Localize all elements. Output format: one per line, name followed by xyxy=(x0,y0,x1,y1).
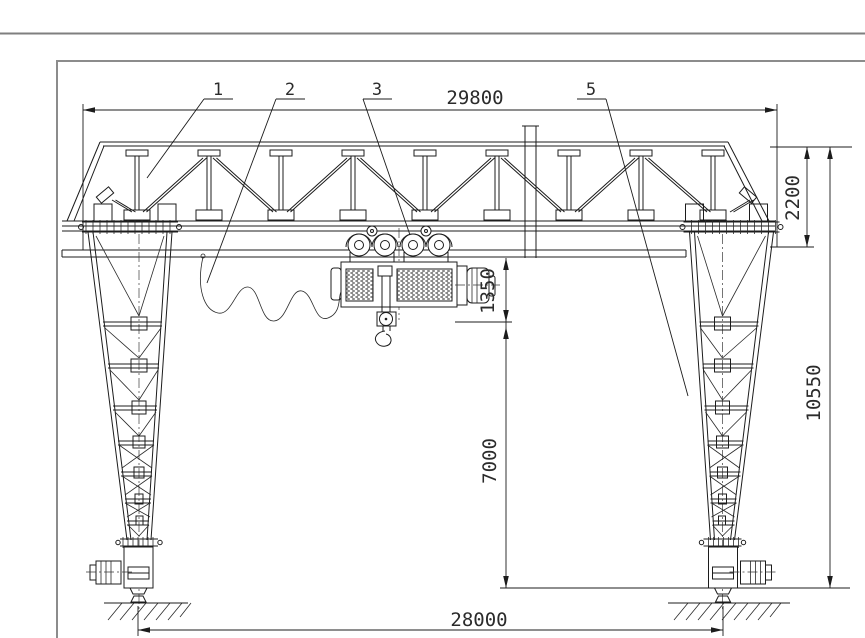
bridge-truss-girder xyxy=(62,142,775,231)
callout-1-text: 1 xyxy=(213,80,223,100)
travel-bogie xyxy=(86,547,153,602)
drawing-sheet: 29800 2200 10550 1350 7000 28000 1 2 xyxy=(0,0,865,638)
dimension-lifting-height: 7000 xyxy=(479,327,509,588)
callout-3-text: 3 xyxy=(372,80,382,100)
hoist-body xyxy=(331,262,500,312)
callout-5-text: 5 xyxy=(586,80,596,100)
dim-girder-depth-text: 2200 xyxy=(782,175,804,221)
truss-end-bracket-left xyxy=(96,187,113,203)
hook-block xyxy=(375,312,396,346)
truss-post-caps xyxy=(126,150,724,156)
callout-2-text: 2 xyxy=(285,80,295,100)
ground-right xyxy=(668,603,790,620)
hoist-monorail-beam xyxy=(62,250,686,257)
truss-end-bracket-right xyxy=(739,187,756,203)
leg-lattice xyxy=(96,236,164,536)
crane-drawing-canvas: 29800 2200 10550 1350 7000 28000 1 2 xyxy=(0,0,865,638)
support-leg-right xyxy=(680,204,783,612)
ground-left xyxy=(104,603,191,620)
dim-hook-headroom-text: 1350 xyxy=(477,268,499,314)
dim-overall-height-text: 10550 xyxy=(803,364,825,421)
rail-section xyxy=(131,596,146,602)
dimension-girder-depth: 2200 xyxy=(770,147,852,247)
dim-span-text: 28000 xyxy=(450,609,507,631)
dimension-span: 28000 xyxy=(138,606,723,636)
dimension-hook-headroom: 1350 xyxy=(455,258,512,588)
dim-overall-length-text: 29800 xyxy=(446,87,503,109)
hook-icon xyxy=(375,331,391,346)
truss-diagonals xyxy=(112,158,754,212)
dim-lifting-height-text: 7000 xyxy=(479,438,501,484)
festoon-cable xyxy=(200,254,341,321)
electric-hoist-trolley xyxy=(331,226,500,346)
drawing-frame xyxy=(57,61,865,638)
support-leg-left xyxy=(79,204,182,612)
